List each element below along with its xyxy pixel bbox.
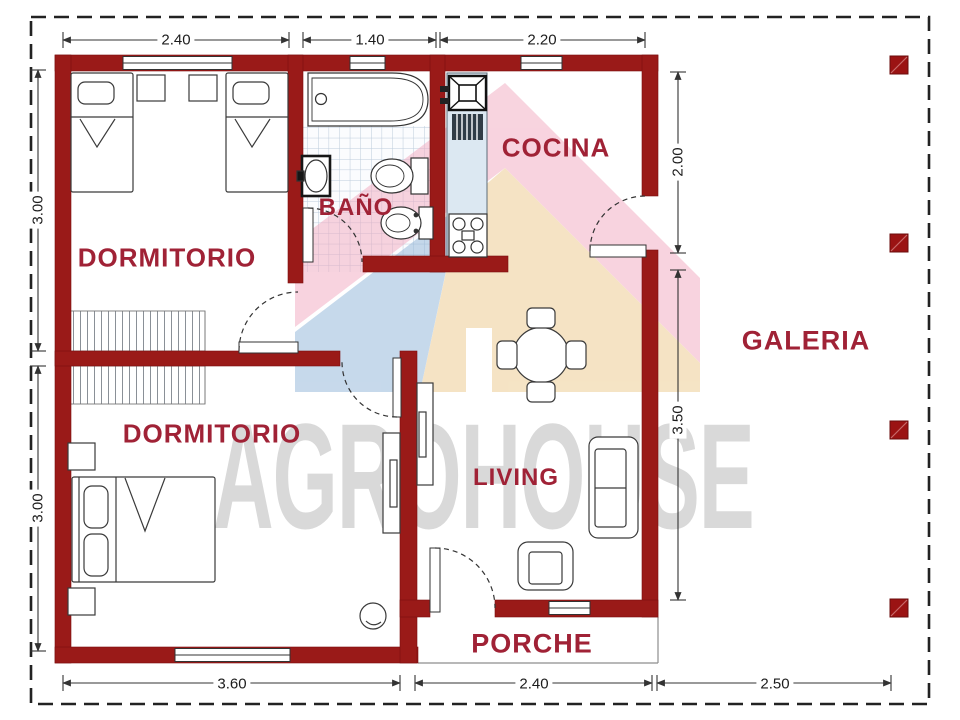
room-label-porche: PORCHE [471, 629, 593, 660]
dining-chair [527, 308, 555, 328]
dim-left-2: 3.00 [30, 489, 47, 526]
room-label-dormitorio2: DORMITORIO [123, 419, 302, 450]
sink-tap-handle [440, 98, 449, 104]
door-leaf-dormitorio2 [393, 358, 401, 417]
furniture-living [417, 308, 638, 590]
dim-top-1: 2.40 [157, 32, 194, 49]
room-label-cocina: COCINA [502, 133, 611, 164]
pillow [84, 534, 108, 576]
floorplan-page: AGROHOUSE [0, 0, 960, 720]
pillow [84, 486, 108, 528]
closet-dormitorio2 [65, 366, 205, 404]
wall-porch-west-stub [400, 600, 430, 617]
stove [449, 214, 487, 257]
dim-bottom-1: 3.60 [213, 676, 250, 693]
door-arc-entry [435, 548, 495, 608]
dim-bottom-2: 2.40 [515, 676, 552, 693]
dim-top-2: 1.40 [351, 32, 388, 49]
door-leaf-entry [430, 548, 440, 612]
armchair-seat [529, 552, 562, 584]
nightstand [68, 443, 95, 470]
window-dormitorio2 [175, 649, 290, 662]
dim-bottom-3: 2.50 [756, 676, 793, 693]
wall-bathroom-south [363, 256, 508, 272]
galeria-posts [890, 56, 908, 617]
window-kitchen [521, 57, 562, 70]
sink-tap-handle [440, 86, 449, 92]
dining-table [514, 328, 569, 383]
dim-left-1: 3.00 [30, 191, 47, 228]
room-label-galeria: GALERIA [742, 326, 871, 357]
toilet-bowl [371, 159, 413, 193]
furniture-dormitorio2 [68, 433, 400, 629]
wall-right-upper [642, 55, 658, 196]
dish-rack [452, 114, 483, 140]
pillow [233, 82, 269, 104]
door-arc-kitchen [590, 196, 645, 251]
door-leaf-kitchen [590, 245, 646, 257]
dining-chair [566, 341, 586, 369]
dining-chair [497, 341, 517, 369]
window-dormitorio1 [123, 57, 232, 70]
washbasin-bowl [305, 160, 327, 192]
window-porch [549, 602, 590, 615]
bathtub-drain [316, 94, 327, 105]
nightstand [137, 75, 165, 101]
room-label-bano: BAÑO [319, 194, 394, 222]
door-leaf-dormitorio1 [239, 342, 298, 353]
furniture-dormitorio1 [71, 73, 288, 192]
closet-dormitorio1 [65, 311, 205, 351]
dim-top-3: 2.20 [523, 32, 560, 49]
dim-right-1: 2.00 [670, 143, 687, 180]
window-bathroom [350, 57, 385, 70]
nightstand [68, 588, 95, 615]
wall-right-main [642, 250, 658, 617]
door-leaf-bathroom [303, 208, 313, 262]
dim-right-2: 3.50 [670, 401, 687, 438]
washbasin-tap [297, 171, 304, 181]
dining-chair [527, 382, 555, 402]
room-label-dormitorio1: DORMITORIO [78, 243, 257, 274]
floorplan-drawing [0, 0, 960, 720]
dresser-detail [390, 460, 397, 507]
room-label-living: LIVING [473, 464, 559, 492]
tv-cabinet-detail [419, 412, 426, 457]
nightstand [189, 75, 217, 101]
pillow [78, 82, 114, 104]
door-arc-dormitorio2 [342, 362, 397, 417]
